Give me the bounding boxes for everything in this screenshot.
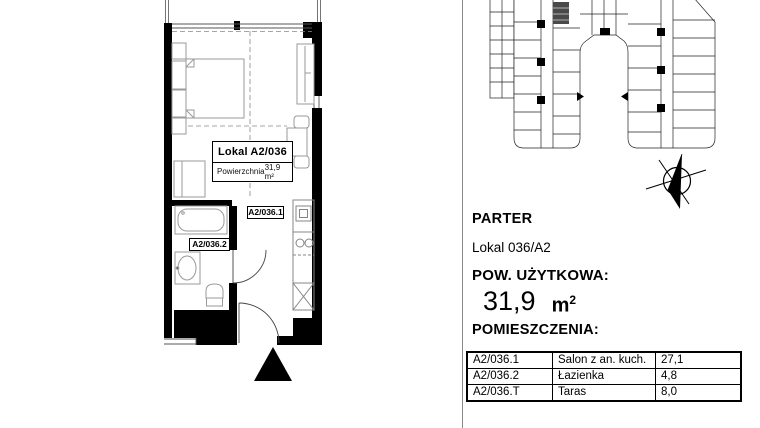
compass-icon [646, 154, 706, 209]
room-tag-salon: A2/036.1 [247, 206, 284, 219]
toilet [206, 284, 223, 306]
panel-divider [462, 0, 463, 428]
unit-label-word: Lokal [218, 146, 248, 158]
unit-label-box: Lokal A2/036 Powierzchnia 31,9 m² [212, 141, 293, 182]
bathroom-door [233, 250, 266, 283]
unit-location-marker [553, 2, 569, 24]
wardrobe [297, 44, 314, 104]
area-label-value: 31,9 m² [265, 163, 288, 181]
bathtub [175, 206, 227, 234]
kitchen-units [293, 200, 314, 310]
unit-label-number: A2/036 [250, 146, 287, 158]
area-label-word: Powierzchnia [217, 167, 265, 176]
site-plan-overview [490, 0, 715, 148]
plan-drawings [0, 0, 760, 428]
doors [233, 250, 279, 343]
entrance-arrow-icon [254, 347, 292, 381]
terrace-outline [166, 0, 321, 23]
apartment-plan-sheet: Lokal A2/036 Powierzchnia 31,9 m² A2/036… [0, 0, 760, 428]
sink [175, 252, 200, 284]
entry-door [239, 303, 279, 343]
bed [172, 43, 244, 134]
room-tag-bathroom: A2/036.2 [189, 238, 230, 251]
sofa [174, 161, 205, 197]
floor-plan [164, 0, 322, 381]
